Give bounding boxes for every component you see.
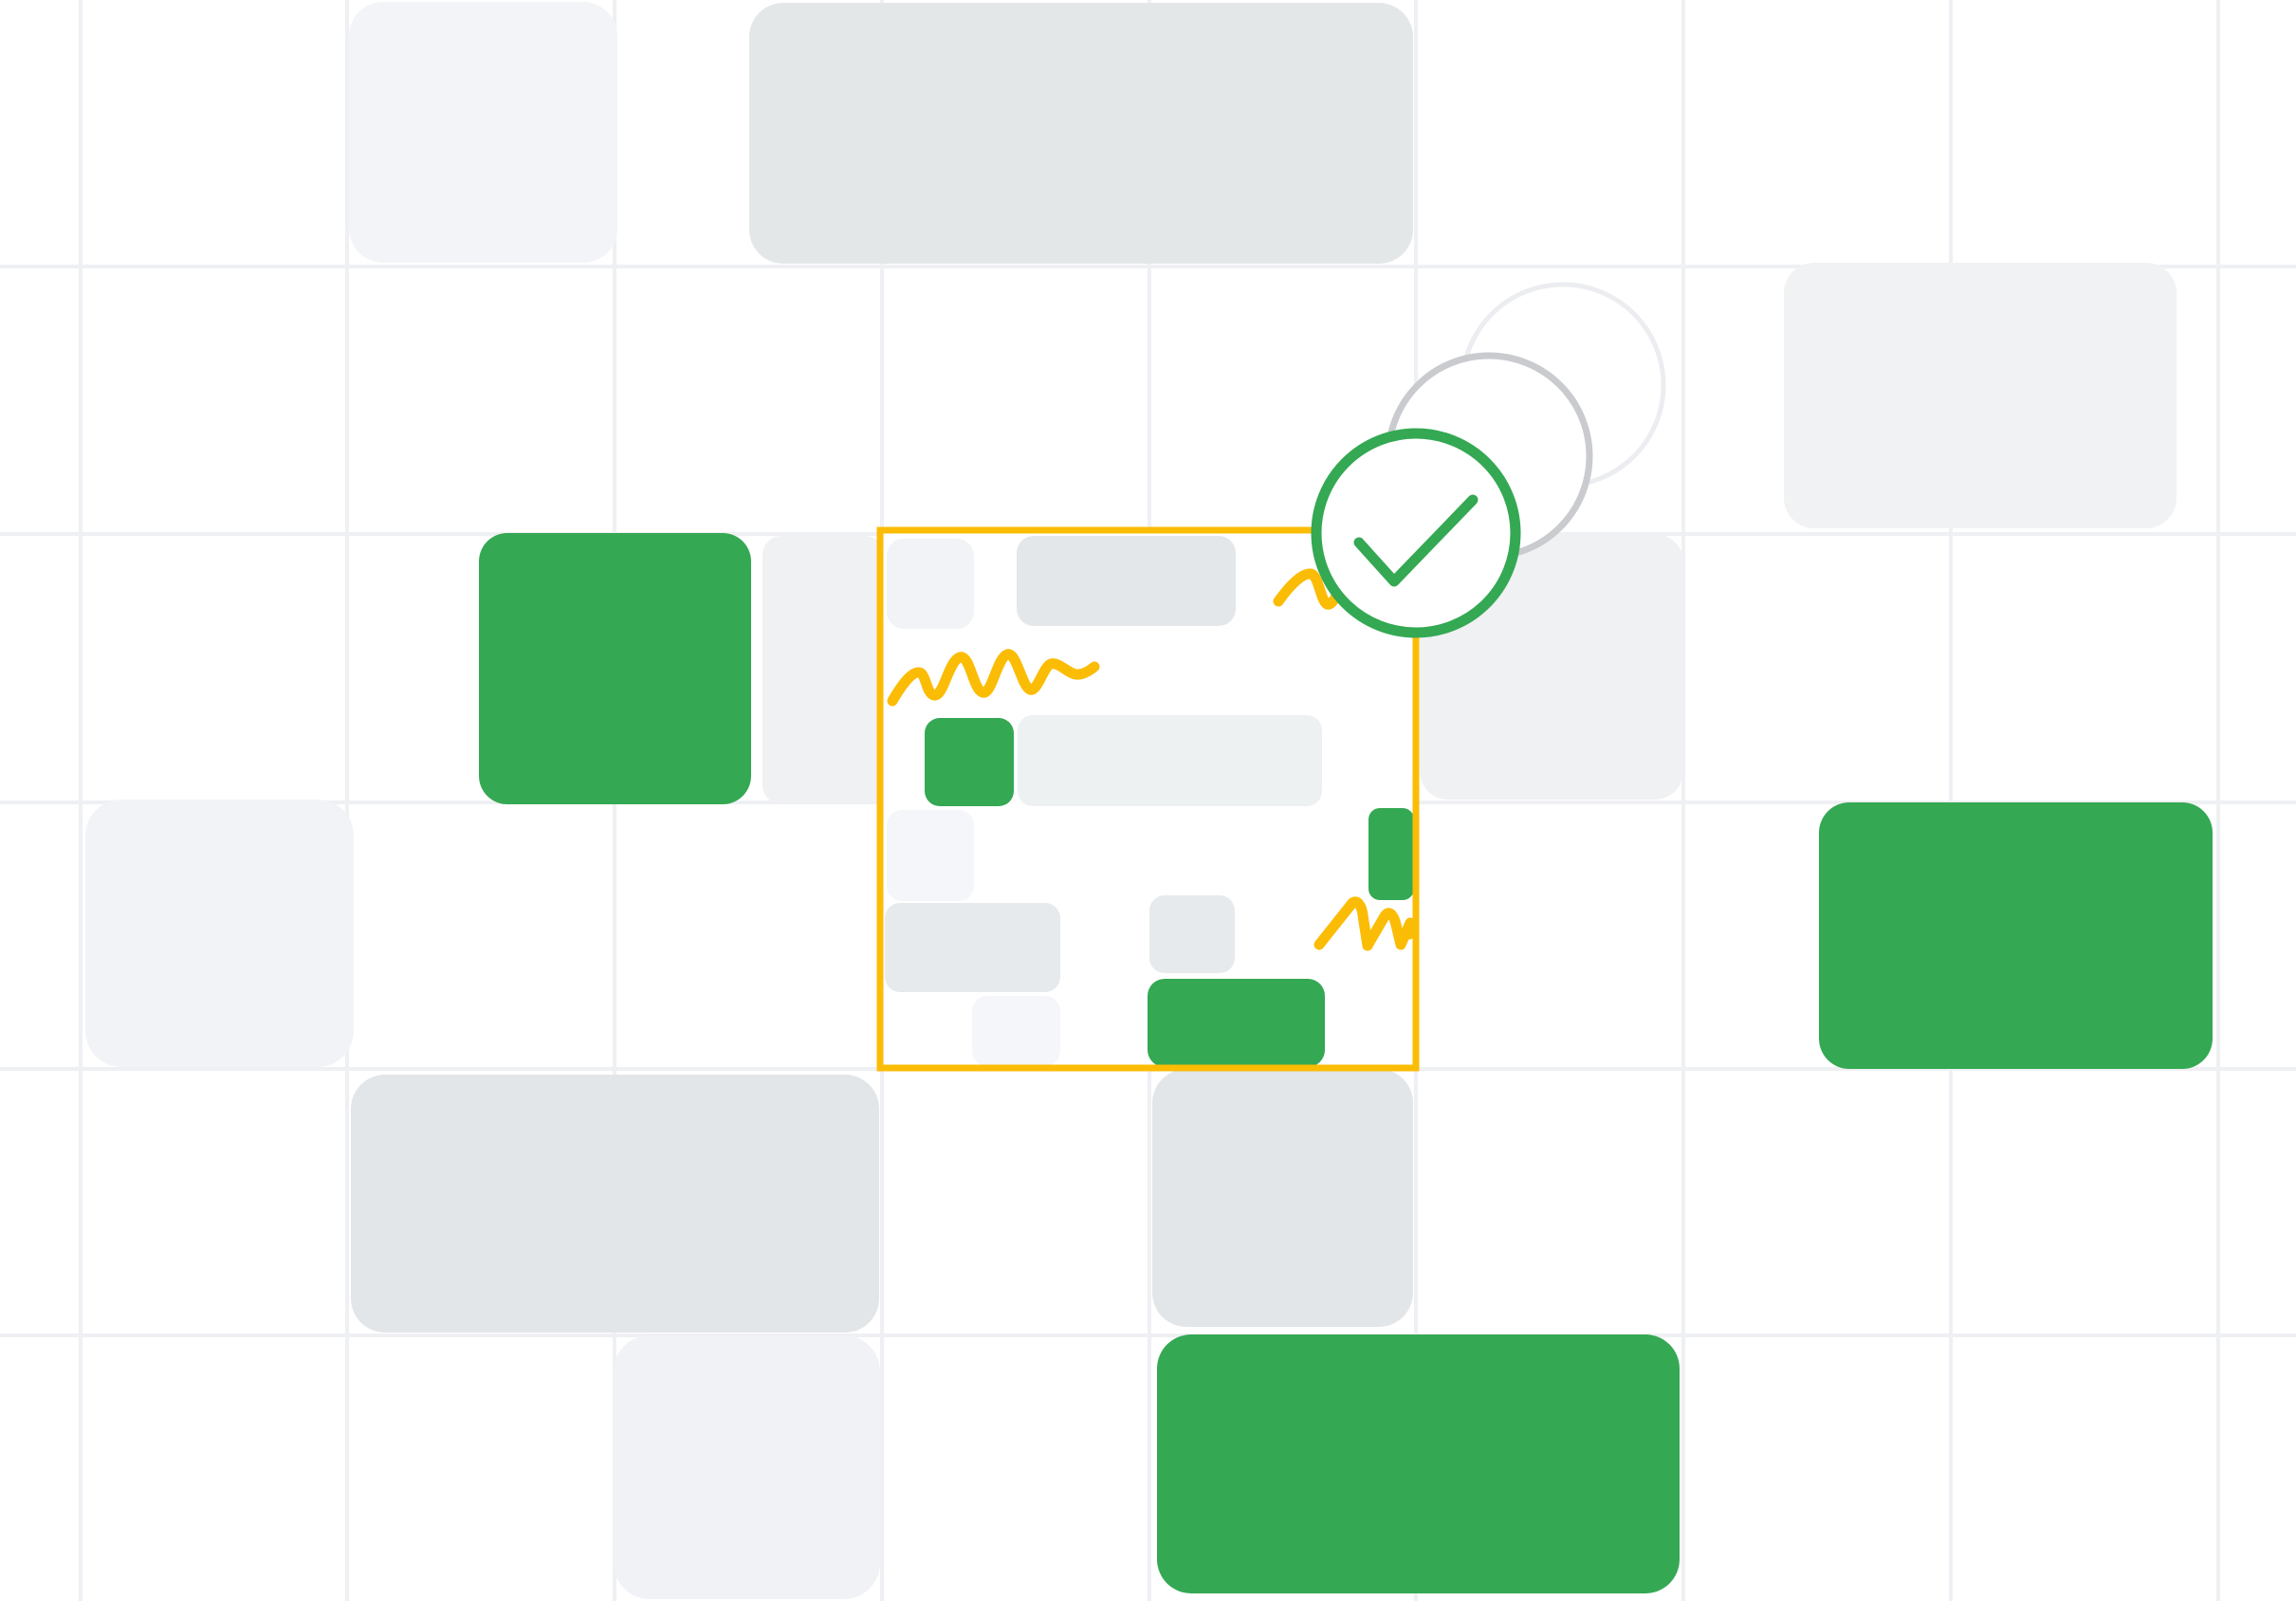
check-circle (1316, 433, 1515, 633)
tile-green-left (479, 533, 751, 804)
card-cell-light-bar (1018, 715, 1322, 806)
tile-bottom-left-gray (351, 1075, 879, 1333)
check-badge (1316, 433, 1515, 633)
card-cell-green-right-edge (1368, 808, 1414, 900)
card-cell-gray-bottom-left (885, 903, 1060, 992)
tile-behind-card-left (762, 536, 884, 804)
grid-line-horizontal (0, 1334, 2296, 1337)
tile-green-right (1819, 802, 2213, 1069)
tile-top-left-light (349, 2, 617, 263)
card-cell-green-square (925, 718, 1014, 806)
card-cell-wide-gray-top (1017, 536, 1236, 626)
card-cell-gray-middle (1149, 895, 1235, 973)
tile-below-card-gray (1152, 1069, 1413, 1327)
card-cell-lighter-left (887, 810, 974, 901)
card-cell-green-bottom (1148, 979, 1325, 1067)
illustration-canvas (0, 0, 2296, 1601)
card-cell-small-light-top (887, 539, 974, 629)
tile-mid-left-light (85, 800, 354, 1067)
tile-bottom-left-light (614, 1335, 880, 1599)
illustration-svg (0, 0, 2296, 1601)
tile-top-gray (749, 3, 1413, 264)
tile-green-bottom (1157, 1334, 1680, 1593)
focus-card (880, 530, 1416, 1068)
card-cell-lighter-under (972, 996, 1060, 1066)
tile-right-gray (1784, 263, 2177, 528)
